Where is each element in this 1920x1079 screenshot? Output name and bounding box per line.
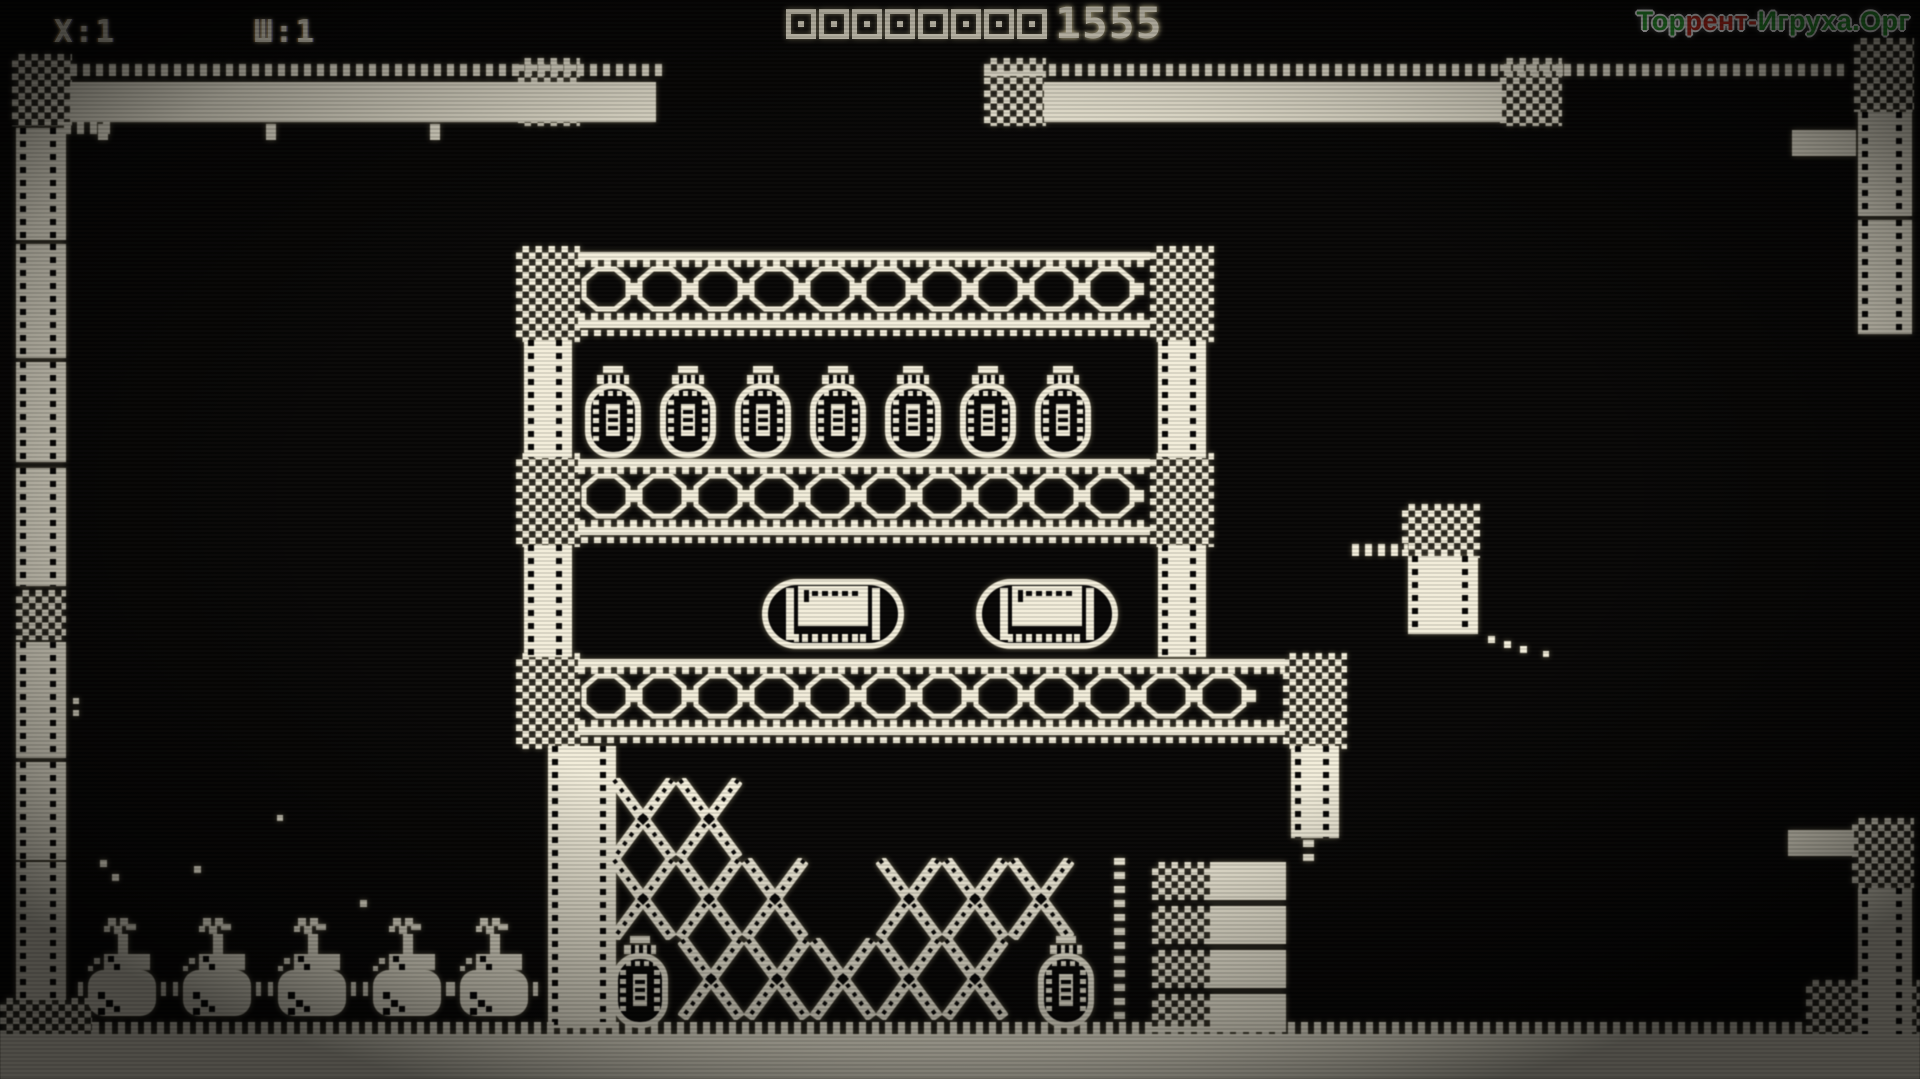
wall-bar bbox=[1792, 130, 1856, 156]
pod-sprite bbox=[1035, 366, 1091, 458]
capsule-sprite bbox=[762, 566, 904, 661]
lattice-x-cell bbox=[610, 858, 676, 940]
pod-sprite bbox=[810, 366, 866, 458]
bottle-sprite bbox=[363, 918, 451, 1020]
pod-sprite bbox=[960, 366, 1016, 458]
debris-dot bbox=[100, 860, 107, 867]
wall-pillar bbox=[1408, 556, 1478, 634]
bottle-sprite bbox=[450, 918, 538, 1020]
pod-sprite bbox=[585, 366, 641, 458]
pod-sprite bbox=[612, 936, 668, 1028]
dashed-edge bbox=[1352, 544, 1408, 556]
debris-dot bbox=[1520, 646, 1527, 653]
wall-checker-block bbox=[516, 453, 580, 547]
lattice-x-cell bbox=[676, 858, 742, 940]
wall-pillar bbox=[16, 128, 66, 240]
wall-pillar bbox=[16, 762, 66, 860]
shelf-plate-checker bbox=[1152, 906, 1210, 944]
shelf-plate-checker bbox=[1152, 862, 1210, 900]
lattice-x-cell bbox=[810, 938, 876, 1020]
wall-pillar bbox=[1858, 220, 1912, 334]
score-zero-box bbox=[951, 9, 981, 39]
bottle-sprite bbox=[268, 918, 356, 1020]
lattice-x-cell bbox=[942, 938, 1008, 1020]
debris-dot bbox=[1543, 651, 1549, 657]
debris-dot bbox=[277, 815, 283, 821]
wall-checker-block bbox=[1283, 653, 1347, 749]
wall-pillar bbox=[1158, 545, 1206, 657]
shelf-plate bbox=[1210, 994, 1286, 1032]
watermark-part-2: рент- bbox=[1686, 6, 1758, 36]
pod-sprite bbox=[735, 366, 791, 458]
debris-dot bbox=[360, 900, 367, 907]
wall-bar bbox=[1044, 82, 1502, 122]
lattice-x-cell bbox=[676, 778, 742, 860]
wall-pillar bbox=[1858, 888, 1912, 1036]
wall-checker-block bbox=[16, 590, 66, 640]
hud-level-counter: Ш:1 bbox=[254, 14, 316, 50]
debris-dot bbox=[1488, 636, 1495, 643]
wall-pillar bbox=[16, 642, 66, 758]
wall-checker-block bbox=[516, 653, 580, 749]
lattice-x-cell bbox=[678, 938, 744, 1020]
score-zero-box bbox=[819, 9, 849, 39]
wall-pillar bbox=[1858, 112, 1912, 216]
dashed-edge bbox=[984, 64, 1564, 76]
dotted-line bbox=[1303, 840, 1314, 866]
lattice-x-cell bbox=[742, 858, 808, 940]
debris-dot bbox=[1504, 641, 1511, 648]
shelf-plate bbox=[1210, 950, 1286, 988]
crt-game-screen: X:1 Ш:1 1555 Торрент-Игруха.Орг bbox=[0, 0, 1920, 1079]
wall-pillar bbox=[548, 746, 616, 1028]
wall-pillar bbox=[16, 862, 66, 1000]
lattice-x-cell bbox=[1008, 858, 1074, 940]
pod-sprite bbox=[660, 366, 716, 458]
wall-checker-block bbox=[516, 246, 580, 342]
platform-beam bbox=[578, 659, 1285, 743]
debris-dot bbox=[194, 866, 201, 873]
score-zero-boxes bbox=[786, 9, 1047, 39]
wall-checker-block bbox=[1150, 453, 1214, 547]
score-zero-box bbox=[786, 9, 816, 39]
shelf-plate bbox=[1210, 906, 1286, 944]
wall-pillar bbox=[16, 362, 66, 462]
dashed-edge bbox=[64, 122, 116, 134]
score-zero-box bbox=[1017, 9, 1047, 39]
wall-bar bbox=[0, 1034, 1920, 1079]
bottle-sprite bbox=[78, 918, 166, 1020]
score-digits: 1555 bbox=[1055, 9, 1163, 39]
wall-pillar bbox=[1158, 340, 1206, 458]
shelf-plate-checker bbox=[1152, 994, 1210, 1032]
dashed-edge bbox=[1564, 64, 1844, 76]
watermark: Торрент-Игруха.Орг bbox=[1637, 6, 1910, 37]
wall-checker-block bbox=[1852, 818, 1914, 888]
score-zero-box bbox=[984, 9, 1014, 39]
score-zero-box bbox=[885, 9, 915, 39]
shelf-plate bbox=[1210, 862, 1286, 900]
wall-bar bbox=[70, 82, 656, 122]
watermark-part-1: Тор bbox=[1637, 6, 1686, 36]
watermark-part-3: Игруха.Орг bbox=[1758, 6, 1910, 36]
debris-dot bbox=[112, 874, 119, 881]
platform-beam bbox=[578, 459, 1150, 543]
wall-checker-block bbox=[1854, 38, 1914, 112]
lattice-x-cell bbox=[744, 938, 810, 1020]
score-zero-box bbox=[918, 9, 948, 39]
wall-pillar bbox=[16, 468, 66, 586]
wall-checker-block bbox=[1402, 504, 1480, 558]
wall-checker-block bbox=[12, 54, 72, 126]
lattice-x-cell bbox=[942, 858, 1008, 940]
debris-dot bbox=[73, 698, 79, 704]
hook-mark bbox=[430, 124, 440, 140]
lattice-x-cell bbox=[876, 938, 942, 1020]
game-scene bbox=[0, 0, 1920, 1079]
wall-pillar bbox=[524, 545, 572, 657]
bottle-sprite bbox=[173, 918, 261, 1020]
shelf-plate-checker bbox=[1152, 950, 1210, 988]
wall-checker-block bbox=[1150, 246, 1214, 342]
lattice-x-cell bbox=[876, 858, 942, 940]
capsule-sprite bbox=[976, 566, 1118, 661]
dashed-edge bbox=[92, 1022, 1806, 1035]
wall-pillar bbox=[16, 244, 66, 358]
dotted-line bbox=[1114, 858, 1125, 1026]
debris-dot bbox=[73, 710, 79, 716]
score-zero-box bbox=[852, 9, 882, 39]
hook-mark bbox=[98, 124, 108, 140]
lattice-x-cell bbox=[610, 778, 676, 860]
wall-bar bbox=[1788, 830, 1854, 856]
platform-beam bbox=[578, 252, 1150, 336]
pod-sprite bbox=[885, 366, 941, 458]
hud-lives-counter: X:1 bbox=[54, 14, 116, 50]
hook-mark bbox=[266, 124, 276, 140]
hud-score: 1555 bbox=[786, 9, 1163, 39]
wall-pillar bbox=[1291, 746, 1339, 838]
pod-sprite bbox=[1038, 936, 1094, 1028]
wall-pillar bbox=[524, 340, 572, 458]
dashed-edge bbox=[70, 64, 662, 76]
